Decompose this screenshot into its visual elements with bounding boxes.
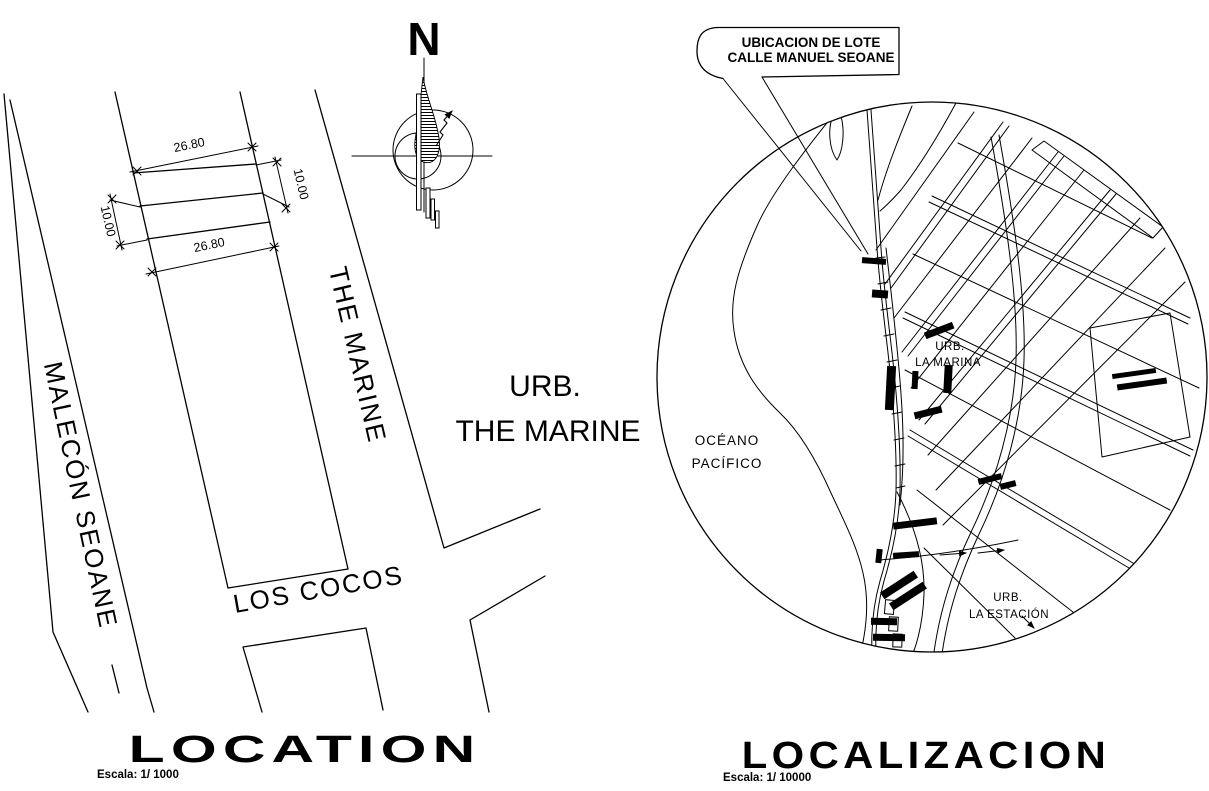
- street-line: [911, 170, 1084, 388]
- urb-la-marina-label-line1: URB.: [935, 341, 964, 353]
- dimension-label-top: 26.80: [172, 135, 205, 155]
- road-line: [871, 110, 900, 653]
- urbanization-label-line2: THE MARINE: [455, 415, 640, 448]
- lot-boundary: [133, 164, 270, 239]
- street-arrow-icon: [978, 550, 1004, 553]
- callout-text-line2: CALLE MANUEL SEOANE: [727, 50, 894, 65]
- road-line: [934, 137, 1016, 652]
- street-label-los-cocos: LOS COCOS: [231, 559, 406, 619]
- lot-marker: [914, 406, 943, 420]
- localization-scale-label: Escala: 1/ 10000: [723, 772, 811, 784]
- ocean-label-line2: PACÍFICO: [692, 456, 763, 471]
- street-line: [908, 436, 1129, 568]
- block-edge: [470, 576, 545, 712]
- street-label-the-marine: THE MARINE: [323, 264, 393, 446]
- road-line: [878, 106, 912, 200]
- cad-sheet: 26.80 26.80 10.00 10.00 MALECÓN SEOANE T…: [0, 0, 1209, 791]
- urb-la-marina-label-line2: LA MARINA: [915, 357, 981, 369]
- lot-edge: [140, 193, 263, 206]
- street-line: [908, 156, 1064, 356]
- street-line: [112, 665, 119, 693]
- lot-callout: UBICACION DE LOTE CALLE MANUEL SEOANE: [697, 28, 899, 255]
- localization-title: LOCALIZACION: [742, 735, 1111, 777]
- compass-bar: [431, 199, 435, 220]
- small-text-mark: [1117, 378, 1167, 391]
- dimension-line: [275, 157, 288, 213]
- compass-bar: [417, 94, 422, 210]
- lot-marker: [867, 649, 889, 655]
- block-edge: [243, 628, 383, 712]
- compass-north-label: N: [407, 13, 440, 65]
- street-line: [925, 194, 1116, 424]
- lot-marker: [893, 517, 938, 529]
- lot-marker: [875, 549, 882, 564]
- urbanization-label-line1: URB.: [509, 370, 581, 403]
- lot-marker: [943, 365, 952, 393]
- north-compass: N: [352, 13, 492, 228]
- compass-bar: [426, 188, 430, 218]
- urbanization-label: URB. THE MARINE: [455, 370, 640, 448]
- street-line: [10, 100, 154, 712]
- street-line: [958, 143, 1152, 238]
- ocean-label-line1: OCÉANO: [695, 433, 760, 448]
- location-title: LOCATION: [129, 727, 482, 770]
- lot-marker: [885, 366, 896, 410]
- road-line: [942, 135, 1024, 654]
- lot-edge: [133, 164, 256, 173]
- callout-text-line1: UBICACION DE LOTE: [742, 35, 881, 50]
- localization-panel: OCÉANO PACÍFICO URB. LA MARINA URB. LA E…: [657, 28, 1207, 785]
- street-label-malecon-seoane: MALECÓN SEOANE: [38, 359, 124, 631]
- drawing-canvas: 26.80 26.80 10.00 10.00 MALECÓN SEOANE T…: [0, 0, 1209, 791]
- callout-leader-line: [762, 77, 868, 254]
- street-line: [943, 282, 1185, 525]
- lot-marker-target: [862, 257, 886, 265]
- road-line: [880, 103, 956, 211]
- location-panel: 26.80 26.80 10.00 10.00 MALECÓN SEOANE T…: [4, 13, 641, 781]
- block-outline: [1032, 141, 1163, 238]
- lot-marker: [893, 551, 919, 559]
- lot-marker: [912, 371, 919, 389]
- street-line: [932, 196, 1190, 318]
- lot-marker: [873, 634, 905, 642]
- compass-bar: [436, 211, 440, 228]
- lot-marker: [872, 289, 889, 298]
- block-edge: [115, 92, 228, 588]
- small-text-mark: [1112, 368, 1156, 379]
- dimension-label-left: 10.00: [98, 204, 119, 238]
- street-grid: [876, 112, 1199, 638]
- lot-marker: [871, 618, 897, 625]
- coastline: [733, 104, 867, 651]
- street-line: [928, 218, 1140, 455]
- callout-leader-line: [723, 79, 861, 252]
- street-line: [891, 126, 1009, 288]
- urb-la-estacion-label-line2: LA ESTACIÓN: [969, 608, 1049, 621]
- lot-edge: [147, 222, 270, 239]
- street-line: [885, 122, 1003, 284]
- location-scale-label: Escala: 1/ 1000: [97, 769, 179, 781]
- park-outline: [830, 113, 843, 160]
- dimension-label-bottom: 26.80: [192, 235, 225, 255]
- street-line: [894, 138, 1032, 318]
- urb-la-estacion-label-line1: URB.: [993, 592, 1022, 604]
- street-line: [910, 430, 1133, 563]
- street-line: [929, 202, 1188, 324]
- dimension-label-right: 10.00: [291, 167, 312, 201]
